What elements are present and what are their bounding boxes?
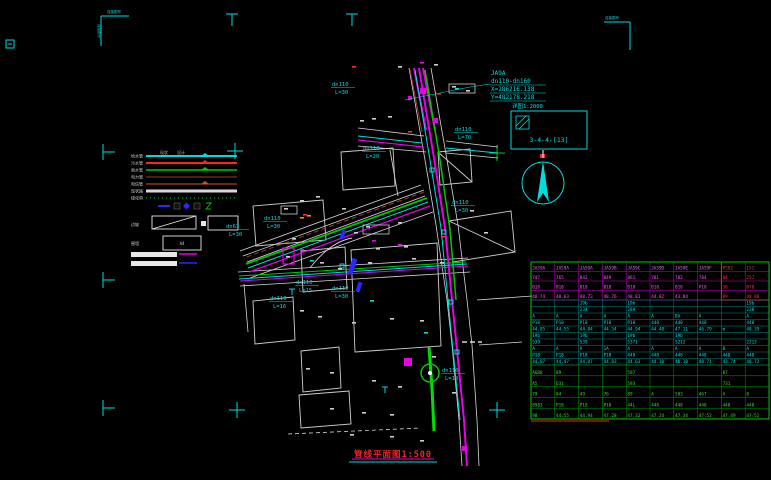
- micro-text-speck: [420, 440, 424, 442]
- table-cell: 44.85: [532, 327, 545, 333]
- table-cell: 47.28: [604, 413, 617, 419]
- table-cell: 784: [699, 275, 707, 281]
- table-cell: 48.71: [699, 359, 712, 365]
- micro-text-speck: [330, 372, 334, 374]
- svg-text:L=30: L=30: [335, 90, 348, 96]
- legend-row: 电信管: [131, 181, 237, 187]
- micro-text-speck: [300, 217, 304, 219]
- svg-text:L=70: L=70: [458, 135, 471, 141]
- table-cell: A: [604, 314, 607, 320]
- table-cell: A: [651, 314, 654, 320]
- table-cell: 5212: [675, 340, 686, 346]
- pipe-labels-layer: dn110L=30dn110L=20dn110L=70dn110L=30dn63…: [225, 82, 478, 382]
- table-cell: 448: [723, 402, 731, 408]
- table-cell: JA59A: [580, 266, 593, 272]
- table-cell: 44.07: [580, 359, 593, 365]
- legend-row-label: 电信管: [131, 181, 143, 187]
- micro-text-speck: [420, 62, 424, 64]
- legend-marker-icon: [201, 181, 209, 184]
- table-cell: B18: [532, 285, 540, 291]
- table-cell: 448: [699, 320, 707, 326]
- table-cell: A: [675, 346, 678, 352]
- table-cell: A: [699, 346, 702, 352]
- table-cell: 49: [580, 392, 586, 398]
- table-cell: 47.34: [675, 413, 688, 419]
- elevation-table: JA59AJA59AJA59AJA59BJA59CJA59DJA59EJA59F…: [531, 262, 769, 421]
- legend-symbol-row: [158, 202, 211, 209]
- pipe-size: dn110-dn160: [491, 78, 531, 85]
- micro-text-speck: [352, 322, 356, 324]
- svg-text:L=30: L=30: [229, 232, 242, 238]
- hydrant-symbol: [404, 358, 412, 366]
- buildings-layer: [253, 148, 515, 428]
- svg-text:dn110: dn110: [452, 200, 469, 206]
- table-cell: P18: [556, 353, 564, 359]
- x-coordinate: X=286216.138: [491, 86, 535, 93]
- table-cell: JA59C: [627, 266, 640, 272]
- table-cell: 448: [651, 320, 659, 326]
- micro-text-speck: [372, 118, 376, 120]
- table-cell: 448: [699, 353, 707, 359]
- table-cell: B18: [604, 285, 612, 291]
- table-cell: 48.63: [556, 294, 569, 300]
- micro-text-speck: [424, 332, 428, 334]
- legend-row: 现状路: [131, 188, 237, 194]
- svg-text:dn110: dn110: [264, 216, 281, 222]
- table-cell: 781: [651, 275, 659, 281]
- table-cell: 47.52: [699, 413, 712, 419]
- pipe-label: dn63L=30: [225, 224, 249, 238]
- y-coordinate: Y=482178.218: [491, 94, 535, 101]
- legend-row: 绿化带: [131, 195, 237, 201]
- table-cell: BA: [675, 314, 681, 320]
- table-cell: 8: [746, 392, 749, 398]
- table-cell: JA59D: [651, 266, 664, 272]
- micro-text-speck: [398, 244, 402, 246]
- micro-text-layer: [284, 62, 488, 442]
- table-cell: JA59A: [556, 266, 569, 272]
- node-id: JA9A: [491, 70, 506, 77]
- svg-text:L=20: L=20: [366, 154, 379, 160]
- pipe-label: dn110L=16: [269, 296, 293, 310]
- table-cell: 448: [699, 402, 707, 408]
- table-cell: A: [627, 314, 630, 320]
- micro-text-speck: [390, 318, 394, 320]
- micro-text-speck: [376, 248, 380, 250]
- table-cell: P18: [556, 402, 564, 408]
- table-cell: B: [723, 346, 726, 352]
- table-cell: 448: [746, 353, 754, 359]
- table-cell: 48.76: [604, 294, 617, 300]
- table-cell: P18: [556, 320, 564, 326]
- detail-code: 3-4-4-[13]: [529, 136, 568, 144]
- legend: 现状 设计 给水管污水管雨水管电力管电信管现状路绿化带 边坡 围墙 A4: [131, 149, 238, 266]
- table-cell: 47.32: [627, 413, 640, 419]
- svg-text:dn110: dn110: [442, 368, 459, 374]
- legend-wall-row: 围墙 A4: [131, 236, 201, 250]
- table-cell: 87: [723, 370, 729, 376]
- table-cell: A: [723, 392, 726, 398]
- table-cell: 43.84: [675, 294, 688, 300]
- table-cell: 19b: [675, 333, 683, 339]
- table-cell: A: [580, 314, 583, 320]
- micro-text-speck: [352, 66, 356, 68]
- table-cell: 8983: [532, 402, 543, 408]
- table-cell: P18: [604, 353, 612, 359]
- micro-text-speck: [420, 320, 424, 322]
- table-cell: A: [746, 314, 749, 320]
- svg-text:dn63: dn63: [226, 224, 239, 230]
- table-cell: 747: [532, 275, 540, 281]
- legend-slope-row: 边坡: [131, 216, 238, 230]
- table-cell: 25J: [746, 275, 754, 281]
- micro-text-speck: [370, 300, 374, 302]
- table-cell: 593: [627, 381, 635, 387]
- wall-label: 围墙: [131, 240, 139, 246]
- table-cell: 448: [627, 353, 635, 359]
- legend-header-existing: 现状: [160, 149, 168, 155]
- table-cell: 84: [556, 392, 562, 398]
- svg-text:dn110: dn110: [270, 296, 287, 302]
- table-cell: 48.73: [580, 294, 593, 300]
- table-cell: 539: [532, 340, 540, 346]
- table-cell: 861: [627, 275, 635, 281]
- svg-text:dn110: dn110: [296, 280, 313, 286]
- micro-text-speck: [318, 316, 322, 318]
- pipe-label: dn110L=15: [295, 280, 319, 294]
- table-cell: 151: [746, 266, 754, 272]
- slope-label: 边坡: [131, 221, 139, 227]
- micro-text-speck: [432, 356, 436, 358]
- micro-text-speck: [362, 412, 366, 414]
- micro-text-speck: [484, 232, 488, 234]
- table-cell: 849: [604, 275, 612, 281]
- table-cell: 842: [580, 275, 588, 281]
- table-cell: 44.82: [651, 294, 664, 300]
- table-cell: 44.48: [651, 327, 664, 333]
- table-cell: 44.63: [627, 359, 640, 365]
- table-cell: 89: [556, 370, 562, 376]
- pipe-label: dn110L=30: [331, 286, 355, 300]
- svg-text:dn110: dn110: [332, 286, 349, 292]
- table-cell: 731: [723, 381, 731, 387]
- table-cell: A: [580, 346, 583, 352]
- legend-row-label: 电力管: [131, 174, 143, 180]
- table-cell: P18: [580, 402, 588, 408]
- table-cell: 1A: [604, 346, 610, 352]
- table-cell: A: [532, 314, 535, 320]
- table-cell: 79: [532, 392, 538, 398]
- legend-marker-icon: [201, 167, 209, 170]
- pipe-label: dn110L=10: [441, 368, 465, 382]
- micro-text-speck: [342, 208, 346, 210]
- table-cell: A: [746, 346, 749, 352]
- svg-text:dn110: dn110: [455, 127, 472, 133]
- legend-row-label: 给水管: [131, 153, 143, 159]
- micro-text-speck: [398, 66, 402, 68]
- table-cell: 48.39: [746, 327, 759, 333]
- table-cell: 597: [627, 370, 635, 376]
- micro-text-speck: [441, 236, 445, 238]
- table-cell: 44.47: [556, 359, 569, 365]
- corner-label-tr: 连接图号: [605, 15, 619, 20]
- table-cell: 36: [723, 285, 729, 291]
- table-cell: 234: [580, 307, 588, 313]
- micro-text-speck: [440, 262, 444, 264]
- micro-text-speck: [388, 116, 392, 118]
- micro-text-speck: [398, 386, 402, 388]
- detail-title: 详图1:2000: [512, 102, 543, 110]
- micro-text-speck: [292, 238, 296, 240]
- wall-box-text: A4: [180, 241, 185, 246]
- svg-text:L=30: L=30: [335, 294, 348, 300]
- table-cell: m: [723, 328, 726, 333]
- table-cell: B18: [556, 285, 564, 291]
- micro-text-speck: [366, 226, 370, 228]
- table-cell: 19b: [627, 301, 635, 307]
- micro-text-speck: [390, 414, 394, 416]
- table-cell: P18: [604, 402, 612, 408]
- table-cell: P18: [604, 320, 612, 326]
- table-cell: A: [627, 346, 630, 352]
- table-cell: 48.72: [746, 359, 759, 365]
- table-cell: 44.34: [604, 327, 617, 333]
- table-cell: 46.79: [699, 327, 712, 333]
- table-cell: 448: [651, 402, 659, 408]
- legend-row: 电力管: [131, 174, 237, 180]
- table-cell: 44.10: [651, 359, 664, 365]
- micro-text-speck: [307, 215, 311, 217]
- table-cell: 19b: [580, 333, 588, 339]
- table-cell: 448: [675, 402, 683, 408]
- table-cell: 448: [746, 402, 754, 408]
- table-cell: 43.74: [723, 359, 736, 365]
- north-compass-icon: [522, 150, 564, 204]
- table-cell: 5371: [627, 340, 638, 346]
- micro-text-speck: [338, 268, 342, 270]
- table-cell: 48.74: [532, 294, 545, 300]
- svg-text:L=30: L=30: [455, 208, 468, 214]
- micro-text-speck: [466, 90, 470, 92]
- micro-text-speck: [412, 258, 416, 260]
- micro-text-speck: [310, 260, 314, 262]
- legend-row-label: 现状路: [131, 188, 143, 194]
- table-cell: 47.52: [746, 413, 759, 419]
- table-cell: JA59F: [699, 266, 712, 272]
- table-cell: 765: [556, 275, 564, 281]
- table-cell: A5: [532, 381, 538, 387]
- table-cell: 448: [675, 353, 683, 359]
- table-cell: 448: [723, 353, 731, 359]
- legend-rows: 给水管污水管雨水管电力管电信管现状路绿化带: [131, 153, 237, 201]
- micro-text-speck: [470, 210, 474, 212]
- micro-text-speck: [452, 86, 456, 88]
- legend-row-label: 污水管: [131, 160, 143, 166]
- svg-text:L=15: L=15: [299, 288, 312, 294]
- table-cell: P18: [580, 353, 588, 359]
- table-cell: 48.10: [675, 359, 688, 365]
- table-cell: 44.55: [556, 327, 569, 333]
- table-cell: A: [556, 314, 559, 320]
- table-cell: 44.94: [627, 327, 640, 333]
- title-text: 管线平面图1:500: [354, 449, 432, 460]
- micro-text-speck: [303, 214, 307, 216]
- svg-text:L=30: L=30: [267, 224, 280, 230]
- legend-row-label: 雨水管: [131, 167, 143, 173]
- micro-text-speck: [316, 196, 320, 198]
- pipe-label: dn110L=30: [331, 82, 355, 96]
- table-cell: P592: [723, 266, 734, 272]
- micro-text-speck: [398, 222, 402, 224]
- table-cell: 19b: [627, 333, 635, 339]
- table-cell: 539: [580, 340, 588, 346]
- micro-text-speck: [437, 93, 441, 95]
- table-cell: 44.55: [556, 413, 569, 419]
- table-cell: B78: [746, 285, 754, 291]
- micro-text-speck: [372, 380, 376, 382]
- micro-text-speck: [300, 200, 304, 202]
- micro-text-speck: [372, 240, 376, 242]
- table-cell: A: [651, 346, 654, 352]
- pipe-label: dn110L=30: [263, 216, 287, 230]
- table-cell: 89: [627, 392, 633, 398]
- table-cell: 47.49: [723, 413, 736, 419]
- table-cell: B18: [651, 285, 659, 291]
- table-cell: P18: [699, 285, 707, 291]
- table-cell: 2213: [746, 340, 757, 346]
- legend-marker-icon: [201, 153, 209, 156]
- table-cell: 448: [651, 353, 659, 359]
- table-cell: 19b: [532, 333, 540, 339]
- table-cell: B18: [627, 285, 635, 291]
- table-cell: D31: [556, 381, 564, 387]
- table-cell: A: [556, 346, 559, 352]
- table-cell: 19b: [746, 301, 754, 307]
- table-cell: JA59A: [532, 266, 545, 272]
- svg-text:L=16: L=16: [273, 304, 286, 310]
- legend-row: 雨水管: [131, 167, 237, 173]
- table-cell: P18: [627, 320, 635, 326]
- micro-text-speck: [320, 262, 324, 264]
- micro-text-speck: [368, 262, 372, 264]
- table-cell: 44L: [627, 402, 635, 408]
- micro-text-speck: [408, 131, 412, 133]
- table-cell: P18: [532, 353, 540, 359]
- table-cell: 44.84: [580, 327, 593, 333]
- micro-text-speck: [300, 249, 304, 251]
- table-cell: 583: [675, 392, 683, 398]
- table-cell: 467: [699, 392, 707, 398]
- legend-row-label: 绿化带: [131, 195, 143, 201]
- detail-box: 详图1:2000 3-4-4-[13]: [511, 102, 587, 149]
- table-cell: A: [699, 314, 702, 320]
- table-cell: P18: [532, 320, 540, 326]
- table-cell: JA59E: [675, 266, 688, 272]
- table-cell: 19b: [580, 301, 588, 307]
- table-cell: 44.94: [580, 413, 593, 419]
- micro-text-speck: [452, 392, 456, 394]
- legend-row: 污水管: [131, 160, 237, 166]
- drawing-title: 管线平面图1:500: [349, 449, 437, 462]
- svg-text:dn110: dn110: [363, 146, 380, 152]
- table-cell: 782: [675, 275, 683, 281]
- table-cell: B18: [675, 285, 683, 291]
- legend-bars: [131, 252, 197, 266]
- micro-text-speck: [434, 64, 438, 66]
- svg-text:L=10: L=10: [445, 376, 458, 382]
- cad-viewport[interactable]: 连接图号 连接图号 连接图号: [0, 0, 771, 480]
- corner-label-tl: 连接图号: [107, 9, 121, 14]
- micro-text-speck: [350, 434, 354, 436]
- table-cell: 89: [723, 294, 729, 300]
- micro-text-speck: [284, 208, 288, 210]
- micro-text-speck: [455, 88, 459, 90]
- hatch-square-icon: [516, 116, 529, 129]
- micro-text-speck: [306, 368, 310, 370]
- micro-text-speck: [390, 436, 394, 438]
- table-cell: JA59B: [604, 266, 617, 272]
- pipe-label: dn110L=70: [454, 127, 478, 141]
- table-cell: A: [651, 392, 654, 398]
- micro-text-speck: [360, 120, 364, 122]
- svg-text:dn110: dn110: [332, 82, 349, 88]
- table-section-C: A6B88959787A5D315937317984497689A583467A…: [531, 365, 769, 419]
- table-section-A: JA59AJA59AJA59AJA59BJA59CJA59DJA59EJA59F…: [531, 262, 769, 300]
- table-cell: A6B8: [532, 370, 543, 376]
- micro-text-speck: [330, 408, 334, 410]
- micro-text-speck: [354, 232, 358, 234]
- legend-marker-icon: [201, 160, 209, 163]
- micro-text-speck: [286, 256, 290, 258]
- corner-label-tl-vert: 连接图号: [97, 24, 102, 38]
- table-cell: 76: [604, 392, 610, 398]
- drawing-canvas: 连接图号 连接图号 连接图号: [0, 0, 771, 480]
- legend-header-design: 设计: [177, 149, 185, 155]
- table-cell: B18: [580, 285, 588, 291]
- table-section-B: 19b19b19b234289238AAAAAABAAAP18P18P18P18…: [531, 300, 769, 365]
- table-cell: 84: [723, 275, 729, 281]
- table-cell: P18: [580, 320, 588, 326]
- table-cell: A: [532, 346, 535, 352]
- table-cell: 238: [746, 307, 754, 313]
- table-cell: 47.11: [675, 327, 688, 333]
- table-cell: 48.81: [627, 294, 640, 300]
- table-cell: 448: [746, 320, 754, 326]
- table-cell: 47.24: [651, 413, 664, 419]
- table-cell: 448: [675, 320, 683, 326]
- table-cell: 98: [532, 413, 538, 419]
- table-cell: 48.88: [746, 294, 759, 300]
- table-cell: 44.83: [604, 359, 617, 365]
- micro-text-speck: [404, 246, 408, 248]
- micro-text-speck: [300, 310, 304, 312]
- table-cell: 289: [627, 307, 635, 313]
- table-cell: 44.87: [532, 359, 545, 365]
